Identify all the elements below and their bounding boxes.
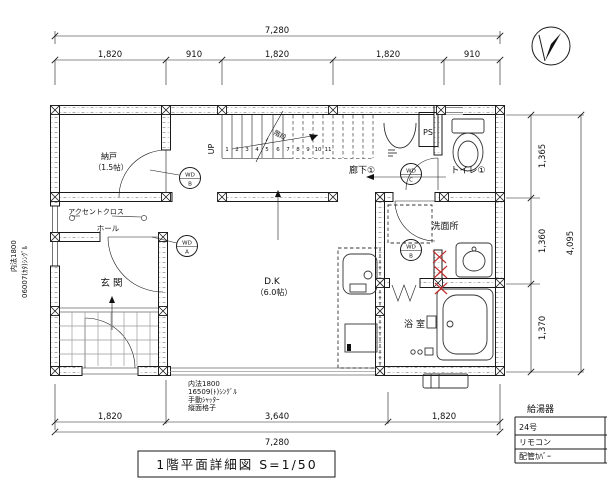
west-window-line1: 内法1800 — [9, 240, 18, 272]
door-tag-toilet-id: C — [409, 178, 413, 184]
door-tag-washroom-type: WD — [406, 245, 416, 251]
equipment-row-1: 24号 — [519, 423, 537, 432]
dim-bottom-total: 7,280 — [265, 438, 289, 448]
floor-plan-drawing: 7,280 1,820 910 1,820 1,820 910 — [0, 0, 608, 480]
dim-top-3: 1,820 — [265, 50, 289, 60]
stair-step-6: 6 — [276, 147, 280, 153]
dim-right-3: 1,370 — [538, 316, 548, 340]
stair-step-7: 7 — [286, 147, 290, 153]
stair-step-8: 8 — [296, 147, 300, 153]
stair-step-9: 9 — [306, 147, 310, 153]
dim-top-2: 910 — [186, 50, 202, 60]
door-tag-storage-type: WD — [185, 173, 195, 179]
dim-bottom-1: 1,820 — [98, 412, 122, 422]
equipment-row-2: リモコン — [519, 438, 551, 447]
label-toilet: トイレ① — [450, 166, 485, 176]
label-ps: PS — [423, 128, 433, 137]
door-tag-washroom-id: B — [409, 254, 413, 260]
door-tag-hall-id: A — [185, 250, 189, 256]
dim-top-5: 910 — [464, 50, 480, 60]
label-dk-size: （6.0帖） — [256, 287, 293, 297]
wall-west-lower — [51, 266, 60, 376]
window-toilet-north — [445, 106, 463, 114]
wall-bath-north-stub — [385, 279, 390, 288]
label-dk: D.K — [264, 277, 281, 287]
label-entrance: 玄関 — [100, 277, 125, 289]
equipment-row-3: 配管ｶﾊﾞｰ — [519, 451, 551, 461]
dim-top-1: 1,820 — [98, 50, 122, 60]
south-window-line1: 内法1800 — [188, 379, 220, 388]
wall-bath-north — [420, 279, 505, 288]
door-tag-hall-type: WD — [182, 241, 192, 247]
dim-bottom-2: 3,640 — [265, 412, 289, 422]
dim-top-4: 1,820 — [376, 50, 400, 60]
drawing-title: 1階平面詳細図 S=1/50 — [156, 457, 317, 472]
up-label: UP — [207, 143, 216, 154]
south-window-line2: 16509(ﾄ)ｼﾝｸﾞﾙ — [188, 388, 237, 396]
label-washroom: 洗面所 — [431, 220, 458, 232]
dim-right-total: 4,095 — [566, 231, 576, 255]
label-storage-size: （1.5帖） — [94, 162, 128, 172]
stair-step-3: 3 — [245, 147, 249, 153]
door-tag-storage-id: B — [188, 182, 192, 188]
stair-step-11: 11 — [325, 147, 332, 153]
dim-right-2: 1,360 — [538, 229, 548, 253]
stair-step-5: 5 — [265, 147, 269, 153]
wall-east — [496, 106, 505, 376]
stair-step-10: 10 — [315, 147, 322, 153]
west-window-line2: 06007(ｶﾀ)ｼﾝｸﾞﾙ — [21, 245, 29, 298]
south-window-line3: 手動ｼｬｯﾀｰ — [188, 395, 220, 404]
wall-west-upper — [51, 106, 60, 207]
stair-step-2: 2 — [235, 147, 239, 153]
equipment-header: 給湯器 — [527, 403, 554, 415]
dim-right-1: 1,365 — [538, 144, 548, 168]
label-hall: ホール — [97, 224, 120, 233]
wall-storage-south — [51, 193, 173, 202]
dim-bottom-3: 1,820 — [432, 412, 456, 422]
wall-entrance-east — [159, 233, 168, 376]
accent-cloth-label: アクセントクロス — [68, 208, 124, 216]
floor-plan-canvas: 7,280 1,820 910 1,820 1,820 910 — [0, 0, 608, 480]
south-window-line4: 縦面格子 — [188, 403, 216, 412]
label-storage: 納戸 — [101, 151, 117, 161]
stair-step-1: 1 — [225, 147, 229, 153]
label-corridor: 廊下① — [349, 164, 375, 176]
dim-top-total: 7,280 — [265, 26, 289, 36]
stair-step-4: 4 — [255, 147, 259, 153]
label-bathroom: 浴室 — [404, 318, 428, 330]
door-tag-toilet-type: WD — [406, 169, 416, 175]
